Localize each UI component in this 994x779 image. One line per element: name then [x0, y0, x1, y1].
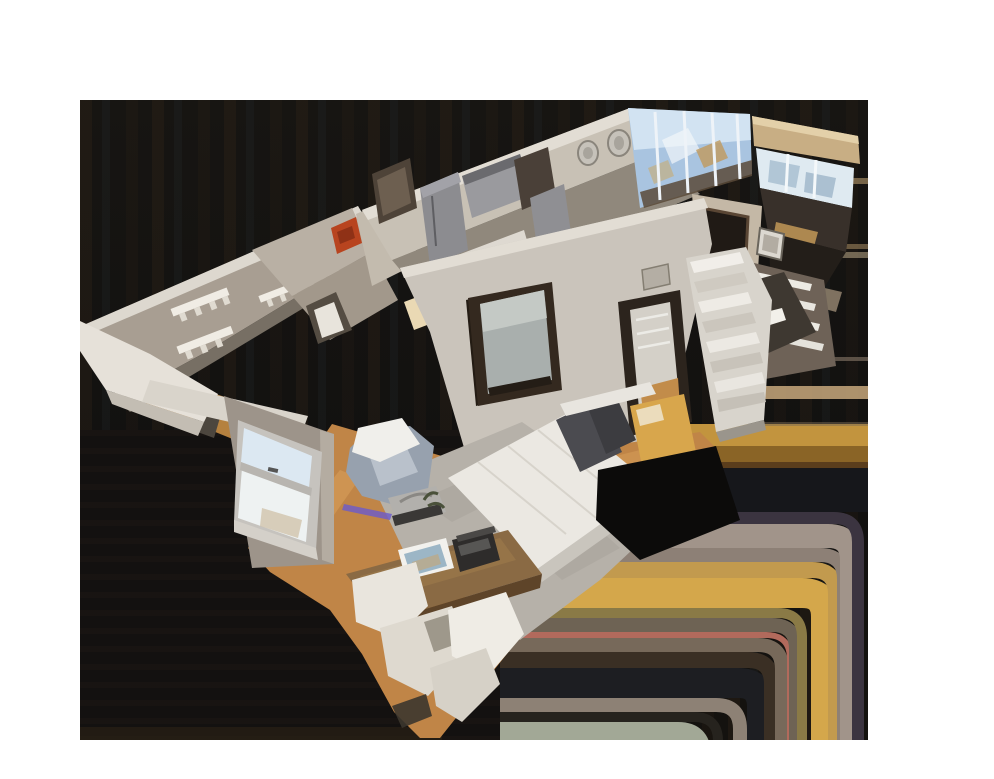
dollhouse-3d-model [0, 0, 994, 779]
stairwell [686, 247, 772, 442]
dollhouse-viewport[interactable] [0, 0, 994, 779]
